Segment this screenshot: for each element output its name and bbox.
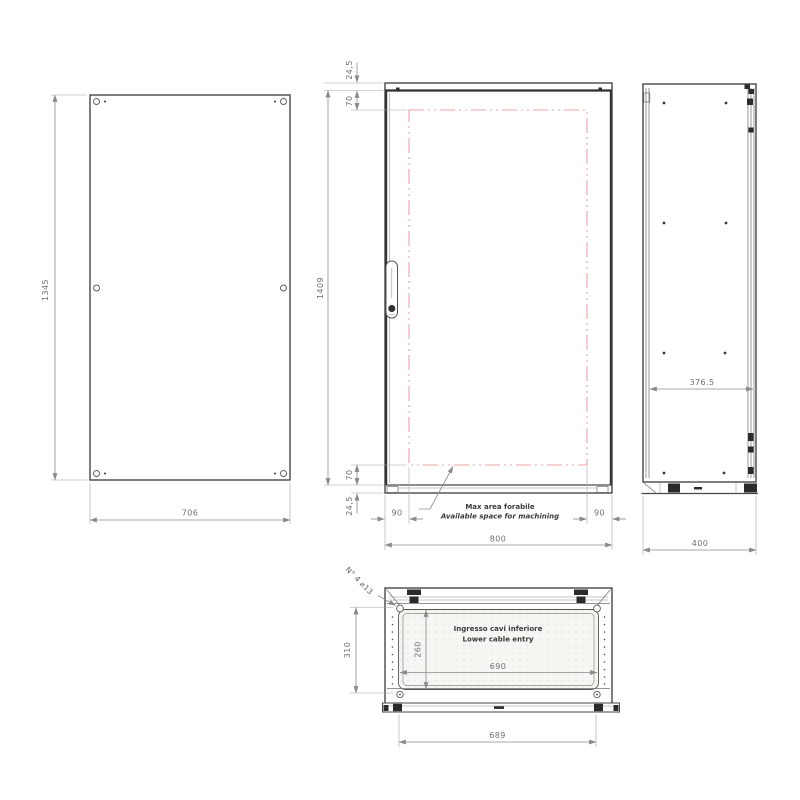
dim-bottom-inset-value: 70 bbox=[345, 470, 354, 481]
panel-hole-icon bbox=[94, 285, 100, 291]
cable-entry-note-line1: Ingresso cavi inferiore bbox=[454, 625, 543, 633]
mount-hole-icon bbox=[725, 222, 728, 225]
panel-pin-icon bbox=[274, 101, 276, 103]
mount-hole-icon bbox=[663, 222, 666, 225]
machining-note-line1: Max area forabile bbox=[465, 503, 535, 511]
technical-drawing-page: 1345 706 bbox=[0, 0, 800, 800]
fixing-hole-center bbox=[399, 694, 401, 696]
front-view: 24,5 70 1409 70 24,5 90 90 bbox=[316, 60, 626, 550]
fixing-hole-center bbox=[596, 694, 598, 696]
bracket-icon bbox=[574, 590, 588, 596]
panel-pin-icon bbox=[104, 101, 106, 103]
dim-side-depth: 400 bbox=[643, 496, 756, 555]
bracket-icon bbox=[410, 597, 419, 604]
machining-note-line2: Available space for machining bbox=[440, 513, 559, 521]
hinge-block-icon bbox=[749, 89, 755, 94]
bracket-icon bbox=[407, 590, 421, 596]
side-base bbox=[642, 483, 759, 494]
lock-icon bbox=[389, 305, 396, 312]
hinge-block-icon bbox=[748, 433, 754, 441]
bottom-rail bbox=[383, 703, 620, 712]
mount-hole-icon bbox=[725, 102, 728, 105]
bracket-icon bbox=[577, 597, 586, 604]
roof-mark-icon bbox=[396, 88, 400, 91]
rear-panel-view: 1345 706 bbox=[41, 95, 290, 524]
bottom-view: Ingresso cavi inferiore Lower cable entr… bbox=[343, 565, 620, 747]
dim-door-height: 1409 bbox=[316, 91, 383, 486]
dim-rear-height-value: 1345 bbox=[41, 279, 50, 301]
panel-hole-icon bbox=[281, 99, 287, 105]
dim-top-margin-value: 24,5 bbox=[345, 60, 354, 79]
dim-depth-value: 400 bbox=[692, 539, 708, 548]
hinge-block-icon bbox=[748, 447, 754, 453]
dim-opening-depth-value: 260 bbox=[414, 641, 423, 657]
dim-bottom-margin-value: 24,5 bbox=[345, 496, 354, 515]
dim-bottom-depth-value: 310 bbox=[343, 642, 352, 658]
mount-hole-icon bbox=[663, 472, 666, 475]
dim-opening-width-value: 690 bbox=[490, 662, 506, 671]
cabinet-outline bbox=[385, 83, 612, 493]
panel-pin-icon bbox=[104, 473, 106, 475]
hinge-block-icon bbox=[747, 99, 753, 106]
hinge-block-icon bbox=[749, 128, 754, 133]
door-handle bbox=[386, 261, 398, 318]
roof-mark-icon bbox=[599, 88, 603, 91]
holes-callout-label: N° 4 ⌀13 bbox=[344, 565, 375, 596]
dim-inner-depth-value: 376.5 bbox=[690, 378, 715, 387]
rear-panel-outline bbox=[90, 95, 290, 480]
side-view: 376.5 400 bbox=[642, 84, 759, 555]
dim-rear-width-value: 706 bbox=[182, 509, 198, 518]
fixing-hole-icon bbox=[594, 605, 601, 612]
dim-front-width-value: 800 bbox=[490, 535, 506, 544]
panel-hole-icon bbox=[281, 471, 287, 477]
panel-hole-icon bbox=[94, 471, 100, 477]
dim-left-offset-value: 90 bbox=[392, 509, 403, 518]
hinge-block-icon bbox=[745, 85, 751, 90]
dim-top-inset-value: 70 bbox=[345, 96, 354, 107]
fixing-hole-icon bbox=[397, 605, 404, 612]
dim-base-width: 689 bbox=[399, 714, 596, 747]
hinge-block-icon bbox=[748, 467, 754, 474]
side-outline bbox=[643, 84, 756, 482]
mount-hole-icon bbox=[663, 352, 666, 355]
gland-plate bbox=[399, 610, 599, 690]
dim-right-offset-value: 90 bbox=[594, 509, 605, 518]
panel-hole-icon bbox=[281, 285, 287, 291]
panel-pin-icon bbox=[274, 473, 276, 475]
cable-entry-note-line2: Lower cable entry bbox=[463, 636, 534, 644]
dim-door-height-value: 1409 bbox=[316, 277, 325, 299]
dim-rear-height: 1345 bbox=[41, 95, 87, 480]
panel-hole-icon bbox=[94, 99, 100, 105]
dim-base-width-value: 689 bbox=[489, 731, 505, 740]
mount-hole-icon bbox=[663, 102, 666, 105]
enclosure-drawing: 1345 706 bbox=[0, 0, 800, 800]
mount-hole-icon bbox=[724, 352, 727, 355]
mount-hole-icon bbox=[723, 472, 726, 475]
dim-rear-width: 706 bbox=[90, 483, 290, 524]
